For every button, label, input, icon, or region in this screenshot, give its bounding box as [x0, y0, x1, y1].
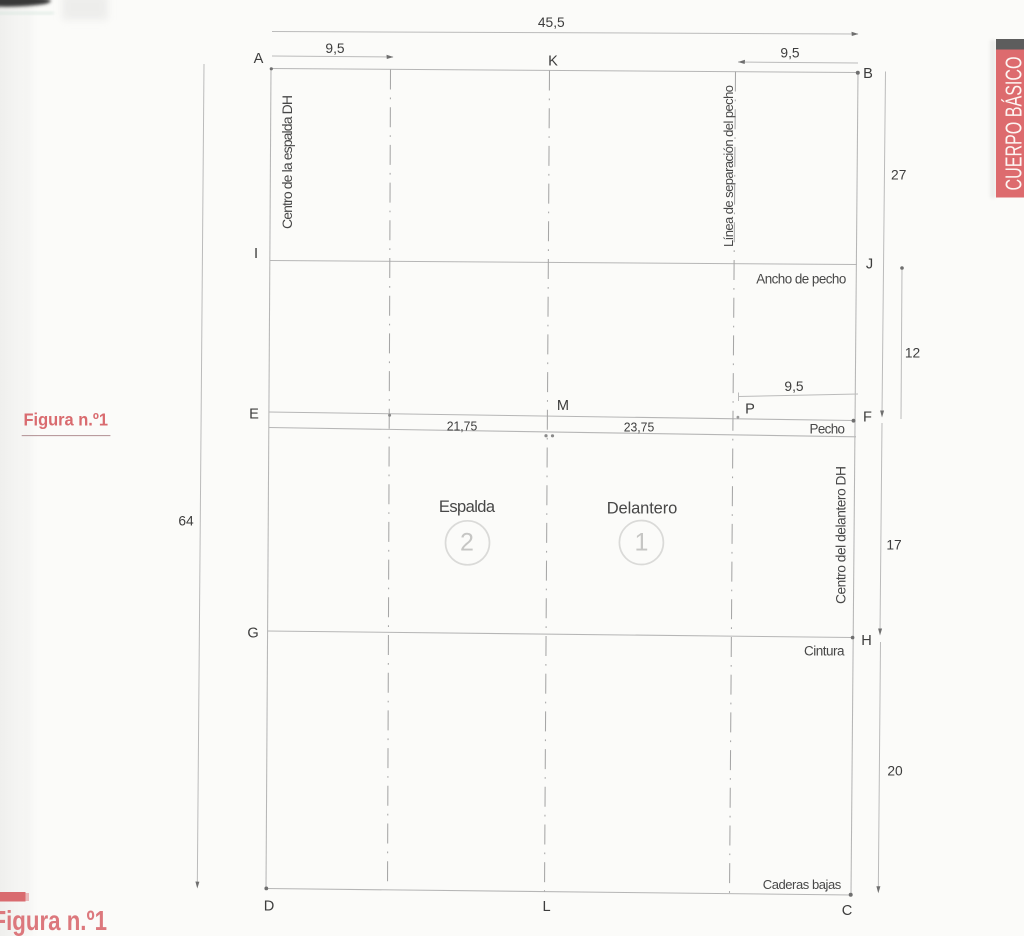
svg-text:Ancho de pecho: Ancho de pecho	[756, 272, 846, 287]
svg-text:CUERPO BÁSICO: CUERPO BÁSICO	[1001, 57, 1024, 191]
svg-text:9,5: 9,5	[784, 379, 804, 394]
svg-text:Figura n.º1: Figura n.º1	[24, 410, 109, 430]
svg-text:2: 2	[460, 529, 474, 557]
svg-text:M: M	[557, 398, 569, 414]
svg-text:9,5: 9,5	[325, 41, 345, 56]
svg-text:Pecho: Pecho	[810, 422, 846, 437]
svg-text:23,75: 23,75	[624, 419, 655, 434]
svg-text:9,5: 9,5	[780, 46, 800, 61]
svg-text:Centro del delantero DH: Centro del delantero DH	[834, 466, 849, 604]
svg-text:45,5: 45,5	[538, 15, 565, 30]
svg-text:Espalda: Espalda	[439, 498, 496, 516]
svg-text:1: 1	[635, 529, 649, 557]
svg-text:17: 17	[886, 538, 901, 553]
svg-text:27: 27	[891, 168, 906, 183]
svg-text:Cintura: Cintura	[804, 644, 845, 659]
svg-text:F: F	[863, 410, 872, 426]
svg-text:D: D	[264, 899, 275, 915]
svg-text:P: P	[745, 402, 755, 418]
svg-text:H: H	[861, 633, 872, 649]
svg-text:12: 12	[905, 346, 920, 361]
svg-text:G: G	[247, 626, 258, 642]
svg-text:J: J	[866, 257, 873, 273]
svg-text:Caderas bajas: Caderas bajas	[763, 877, 842, 892]
svg-text:Delantero: Delantero	[607, 500, 678, 518]
svg-text:Figura n.º1: Figura n.º1	[0, 905, 107, 936]
svg-text:A: A	[254, 51, 264, 67]
svg-text:Centro de la espalda DH: Centro de la espalda DH	[279, 95, 295, 229]
svg-text:L: L	[542, 899, 550, 915]
svg-text:I: I	[254, 246, 258, 262]
svg-text:Línea de separación del pecho: Línea de separación del pecho	[721, 85, 736, 247]
svg-text:E: E	[249, 407, 259, 423]
svg-text:20: 20	[887, 764, 903, 779]
svg-text:21,75: 21,75	[447, 419, 478, 434]
svg-text:C: C	[842, 903, 853, 919]
svg-text:64: 64	[178, 514, 194, 529]
svg-text:B: B	[863, 66, 873, 82]
svg-text:K: K	[548, 54, 558, 70]
